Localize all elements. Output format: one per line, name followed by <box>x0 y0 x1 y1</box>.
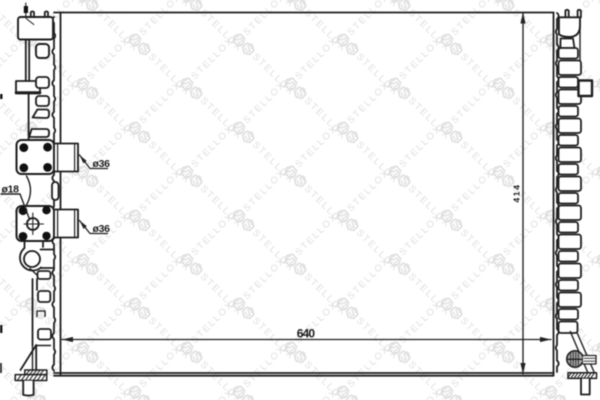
svg-text:414: 414 <box>511 183 521 202</box>
svg-text:ø36: ø36 <box>93 223 111 235</box>
svg-text:ø36: ø36 <box>93 158 111 170</box>
svg-text:ø18: ø18 <box>2 184 20 196</box>
svg-text:640: 640 <box>297 327 316 341</box>
